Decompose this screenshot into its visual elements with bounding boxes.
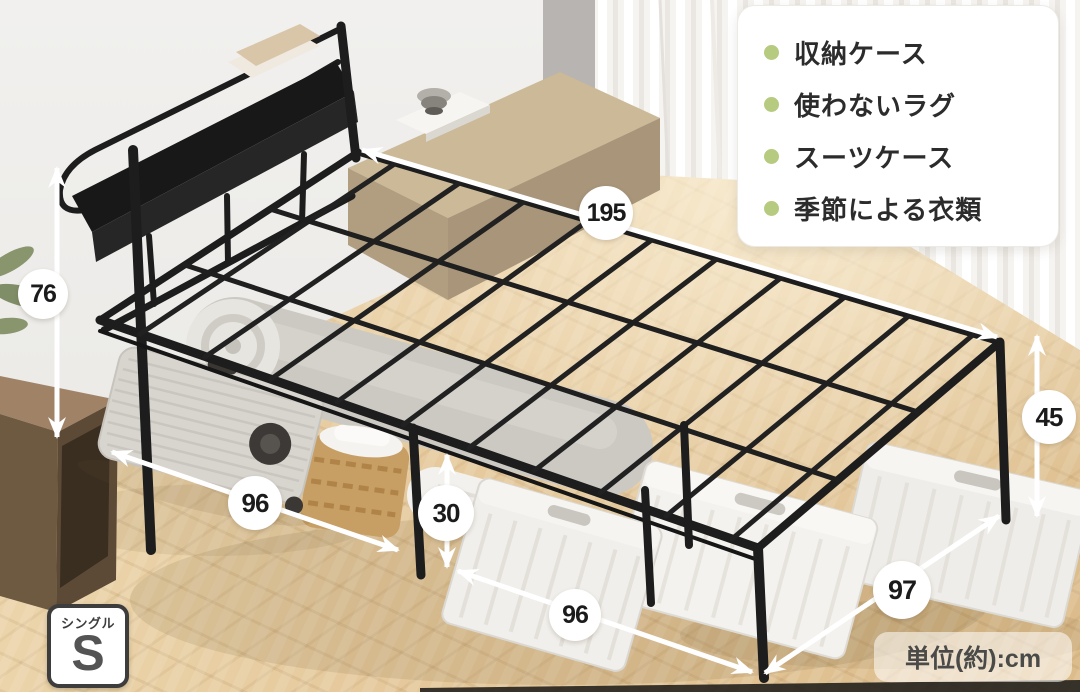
list-item-label: スーツケース [794, 138, 954, 175]
list-item-label: 季節による衣類 [794, 190, 982, 227]
size-badge: シングル S [47, 604, 129, 688]
books-on-shelf [228, 24, 320, 78]
unit-note: 単位(約):cm [874, 632, 1072, 682]
storage-ideas-card: 収納ケース 使わないラグ スーツケース 季節による衣類 [737, 5, 1059, 247]
list-item: 収納ケース [764, 26, 1058, 78]
bullet-dot-icon [764, 149, 779, 164]
headboard-shelf [72, 62, 354, 232]
product-photo: 195 76 96 30 96 97 45 収納ケース 使わないラグ スーツケー… [0, 0, 1080, 692]
list-item: 使わないラグ [764, 78, 1058, 130]
dimension-foot-depth-label: 97 [873, 561, 931, 619]
bullet-dot-icon [764, 45, 779, 60]
bullet-dot-icon [764, 201, 779, 216]
list-item-label: 収納ケース [794, 34, 928, 71]
dimension-frame-height-label: 45 [1022, 390, 1076, 444]
size-badge-letter: S [71, 630, 104, 676]
list-item: 季節による衣類 [764, 182, 1058, 234]
dimension-clearance-label: 30 [418, 485, 474, 541]
dimension-headboard-height-label: 76 [18, 269, 68, 319]
list-item: スーツケース [764, 130, 1058, 182]
list-item-label: 使わないラグ [794, 86, 956, 123]
dimension-foot-width-label: 96 [549, 589, 601, 641]
dimension-length-label: 195 [579, 186, 633, 240]
dimension-head-width-label: 96 [228, 476, 282, 530]
bullet-dot-icon [764, 97, 779, 112]
